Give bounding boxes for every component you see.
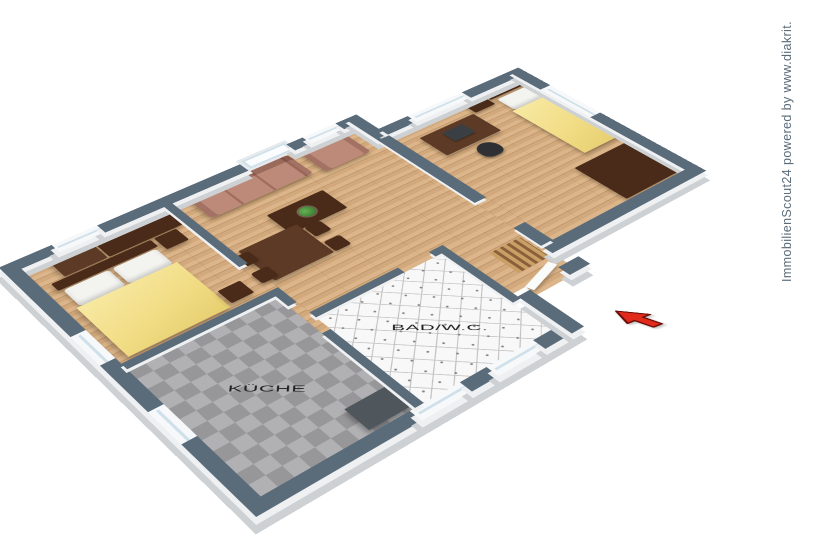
room-label-bath: BAD/W.C.: [391, 324, 488, 333]
floorplan-canvas: KÜCHE BAD/W.C. ImmobilienScout24 powered…: [0, 0, 818, 540]
floorplan-3d-scene: KÜCHE BAD/W.C.: [0, 55, 781, 517]
plant-icon: [295, 204, 320, 218]
watermark-text: ImmobilienScout24 powered by www.diakrit…: [780, 0, 794, 282]
entrance-arrow-icon: [599, 305, 673, 330]
room-label-kitchen: KÜCHE: [227, 384, 307, 394]
